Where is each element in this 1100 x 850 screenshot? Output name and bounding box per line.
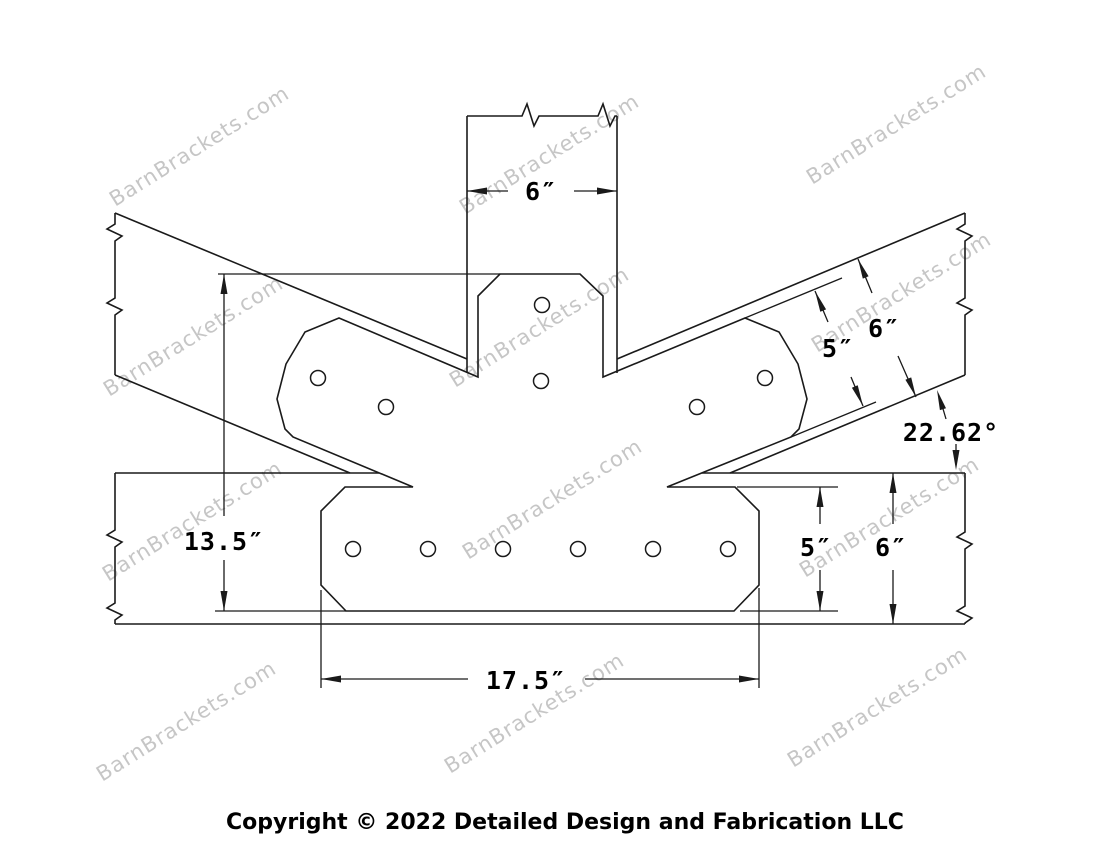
arrowhead (817, 591, 824, 611)
bolt-hole (721, 542, 736, 557)
bolt-hole (496, 542, 511, 557)
arrowhead (597, 188, 617, 195)
bolt-hole (690, 400, 705, 415)
arrowhead (852, 385, 863, 406)
dim-beam-depth-label: 6″ (875, 533, 907, 562)
drawing-canvas: BarnBrackets.com BarnBrackets.com BarnBr… (0, 0, 1100, 850)
dimension-pitch-angle: 22.62° (903, 390, 999, 470)
bracket-technical-drawing-page: BarnBrackets.com BarnBrackets.com BarnBr… (0, 0, 1100, 850)
dimension-rafter-plate-width: 5″ (745, 278, 876, 437)
watermark-text: BarnBrackets.com (458, 434, 647, 564)
arrowhead (321, 676, 341, 683)
bolt-hole (311, 371, 326, 386)
bolt-hole (535, 298, 550, 313)
left-rafter-break-line (107, 213, 122, 375)
beam-left-break-line (107, 473, 122, 624)
dim-post-width-label: 6″ (525, 177, 557, 206)
dimension-plate-length: 17.5″ (321, 588, 759, 695)
beam-right-break-line (957, 473, 972, 624)
bolt-hole (534, 374, 549, 389)
arrowhead (739, 676, 759, 683)
watermark-text: BarnBrackets.com (445, 262, 634, 392)
arrowhead (890, 604, 897, 624)
watermark-text: BarnBrackets.com (802, 59, 991, 189)
dim-pitch-angle-label: 22.62° (903, 418, 999, 447)
bolt-hole (379, 400, 394, 415)
dim-plate-length-label: 17.5″ (486, 666, 566, 695)
dim-rafter-depth-label: 6″ (868, 314, 900, 343)
arrowhead (905, 377, 916, 397)
arrowhead (858, 259, 869, 279)
watermark-text: BarnBrackets.com (783, 642, 972, 772)
bolt-hole (646, 542, 661, 557)
bolt-hole (421, 542, 436, 557)
watermark-text: BarnBrackets.com (795, 452, 984, 582)
extension-line (745, 278, 842, 318)
arrowhead (221, 274, 228, 294)
arrowhead (937, 390, 946, 410)
arrowhead (815, 291, 826, 312)
arrowhead (890, 473, 897, 493)
dim-beam-plate-width-label: 5″ (800, 533, 832, 562)
dim-rafter-plate-width-label: 5″ (822, 334, 854, 363)
arrowhead (221, 591, 228, 611)
watermark-text: BarnBrackets.com (105, 81, 294, 211)
bolt-hole (571, 542, 586, 557)
bolt-hole (346, 542, 361, 557)
dim-overall-height-label: 13.5″ (184, 527, 264, 556)
watermark-text: BarnBrackets.com (99, 271, 288, 401)
copyright-text: Copyright © 2022 Detailed Design and Fab… (226, 810, 904, 835)
extension-line (791, 402, 876, 437)
watermark-text: BarnBrackets.com (98, 456, 287, 586)
bolt-hole (758, 371, 773, 386)
watermark-text: BarnBrackets.com (92, 656, 281, 786)
left-rafter-bottom-edge (115, 375, 350, 473)
arrowhead (817, 487, 824, 507)
